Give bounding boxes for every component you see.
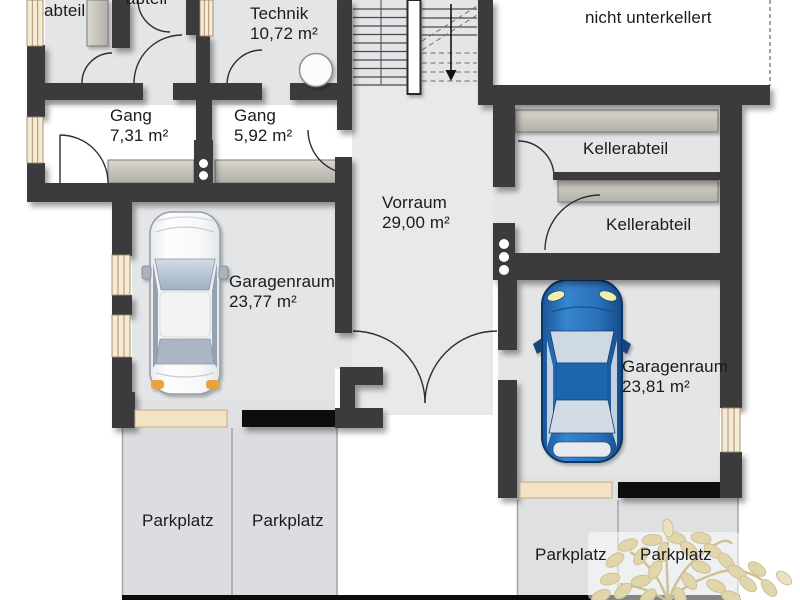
room-name: Gang <box>110 106 168 126</box>
room-name: Vorraum <box>382 193 450 213</box>
car-white <box>142 212 228 394</box>
room-label-technik: Technik 10,72 m² <box>250 4 318 44</box>
window <box>722 408 740 452</box>
room-label-nicht-unterkellert: nicht unterkellert <box>585 8 712 28</box>
room-area: 7,31 m² <box>110 126 168 146</box>
room-area: 23,81 m² <box>622 377 728 397</box>
garage-door <box>520 482 612 498</box>
room-area: 10,72 m² <box>250 24 318 44</box>
room-label-garage-east: Garagenraum 23,81 m² <box>622 357 728 397</box>
room-label-garage-west: Garagenraum 23,77 m² <box>229 272 335 312</box>
room-area: 29,00 m² <box>382 213 450 233</box>
garage-door-lintel <box>618 482 720 498</box>
parking-label-2: Parkplatz <box>252 511 324 531</box>
garage-door <box>135 410 227 427</box>
floor-plan-graphics <box>0 0 800 600</box>
floor-plan: abteil abteil Technik 10,72 m² nicht unt… <box>0 0 800 600</box>
room-label-kellerabteil-1: Kellerabteil <box>583 139 668 159</box>
garage-door-lintel <box>242 410 335 427</box>
mirror <box>219 266 228 279</box>
room-label-gang-west: Gang 7,31 m² <box>110 106 168 146</box>
stair-rail <box>408 0 421 94</box>
room-label-vorraum: Vorraum 29,00 m² <box>382 193 450 233</box>
tail-light <box>151 380 164 389</box>
room-label-kellerabteil-2: Kellerabteil <box>606 215 691 235</box>
door-arc <box>60 135 108 183</box>
window <box>112 315 130 357</box>
room-area: 23,77 m² <box>229 292 335 312</box>
room-name: Garagenraum <box>229 272 335 292</box>
room-name: Garagenraum <box>622 357 728 377</box>
room-label-gang-east: Gang 5,92 m² <box>234 106 292 146</box>
mirror <box>142 266 151 279</box>
room-name: Gang <box>234 106 292 126</box>
tail-light <box>206 380 219 389</box>
room-label-kellerabteil-top-left: abteil <box>44 1 85 21</box>
window <box>112 255 130 295</box>
parking-label-3: Parkplatz <box>535 545 607 565</box>
room-area: 5,92 m² <box>234 126 292 146</box>
window <box>27 0 43 46</box>
parking-label-4: Parkplatz <box>640 545 712 565</box>
room-name: Technik <box>250 4 318 24</box>
boiler <box>300 54 333 87</box>
parking-label-1: Parkplatz <box>142 511 214 531</box>
window <box>200 0 213 36</box>
window <box>27 117 43 163</box>
car-blue <box>533 280 631 462</box>
room-label-kellerabteil-top-center: abteil <box>126 0 167 9</box>
